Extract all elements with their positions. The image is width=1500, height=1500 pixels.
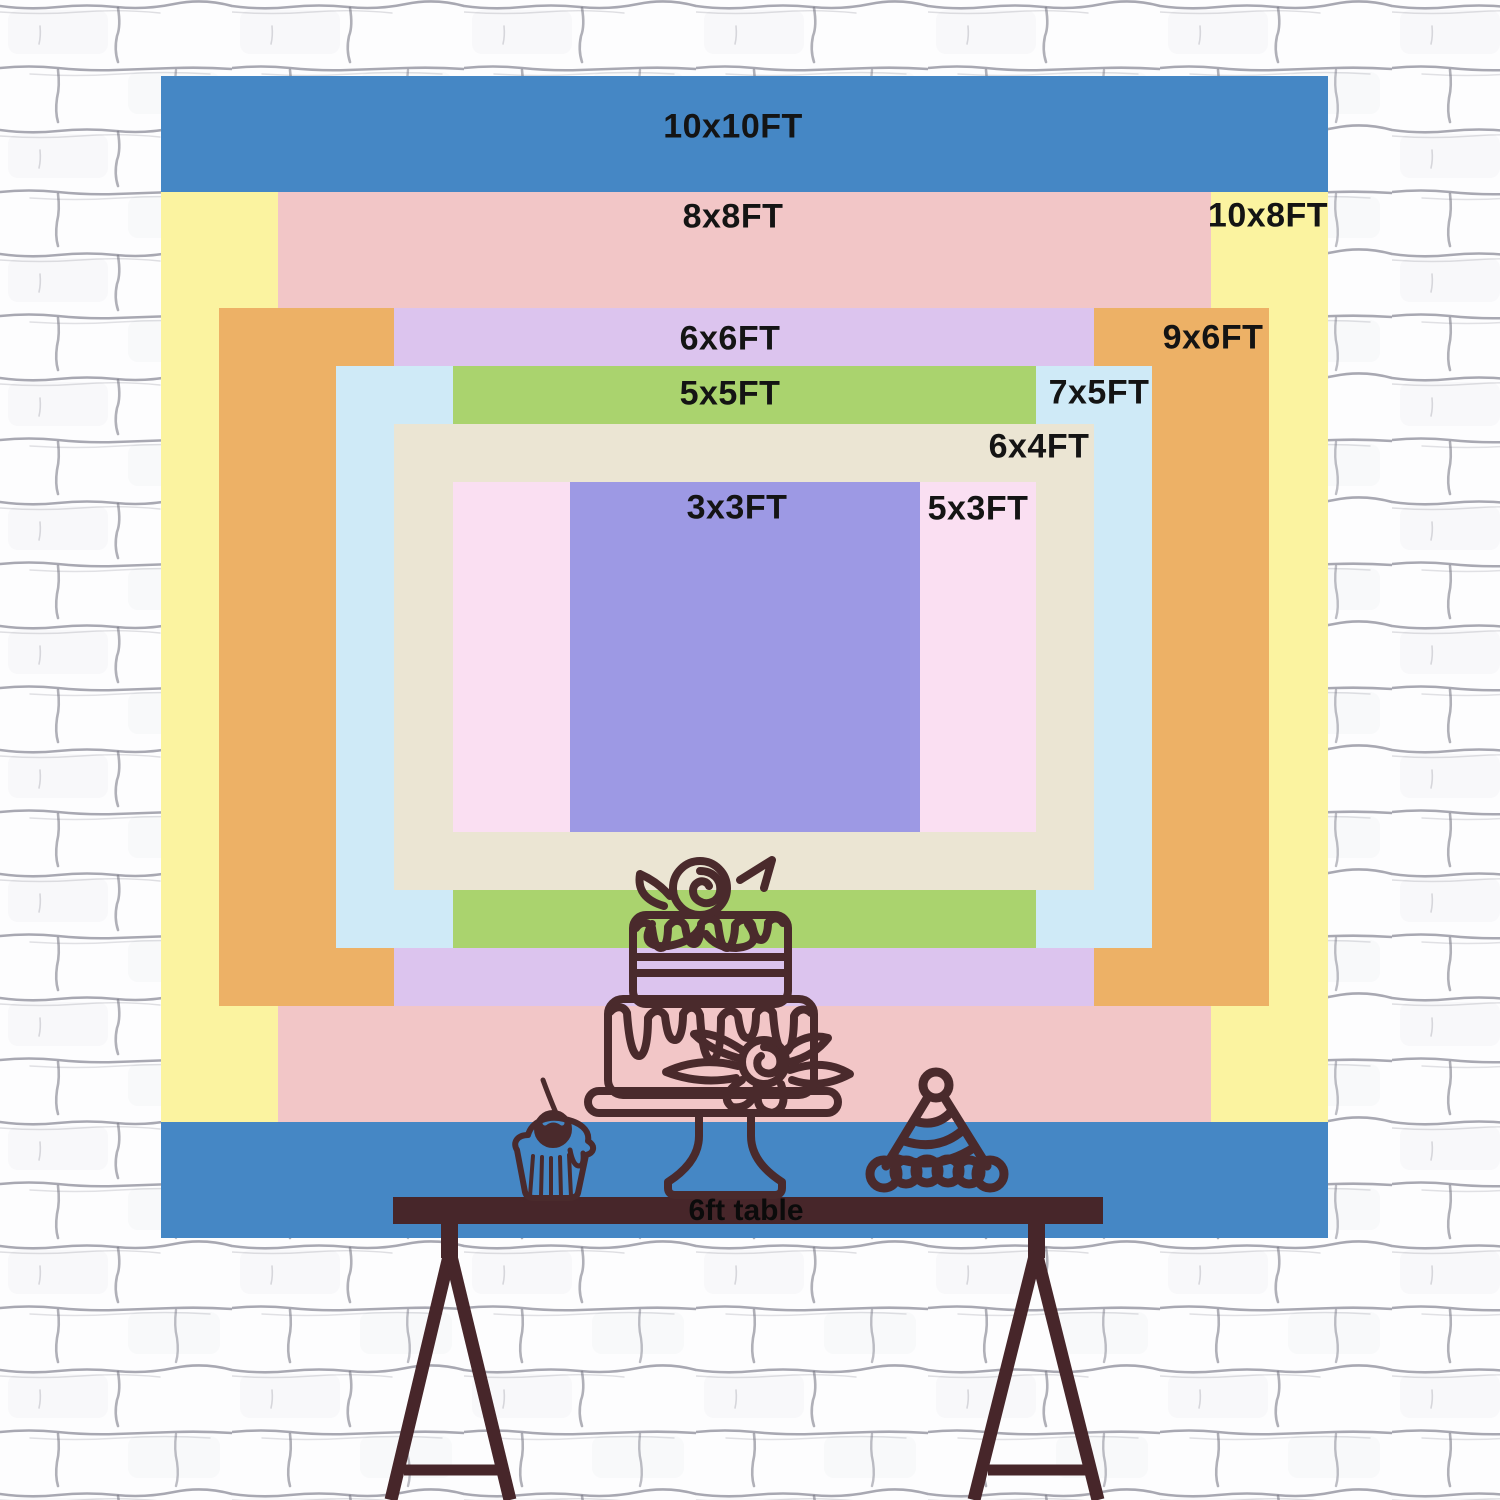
size-label-10x10: 10x10FT xyxy=(663,108,803,147)
size-layer-3x3 xyxy=(570,482,920,832)
size-label-5x5: 5x5FT xyxy=(680,375,781,414)
size-label-6x6: 6x6FT xyxy=(680,320,781,359)
backdrop-size-layers: 10x10FT10x8FT8x8FT9x6FT6x6FT7x5FT5x5FT6x… xyxy=(0,0,1500,1500)
size-label-10x8: 10x8FT xyxy=(1208,197,1328,236)
size-label-7x5: 7x5FT xyxy=(1049,374,1150,413)
size-label-6x4: 6x4FT xyxy=(989,428,1090,467)
size-label-5x3: 5x3FT xyxy=(928,490,1029,529)
size-chart-infographic: 10x10FT10x8FT8x8FT9x6FT6x6FT7x5FT5x5FT6x… xyxy=(0,0,1500,1500)
size-label-9x6: 9x6FT xyxy=(1163,319,1264,358)
size-label-8x8: 8x8FT xyxy=(683,198,784,237)
table-size-label: 6ft table xyxy=(688,1194,803,1228)
size-label-3x3: 3x3FT xyxy=(687,489,788,528)
